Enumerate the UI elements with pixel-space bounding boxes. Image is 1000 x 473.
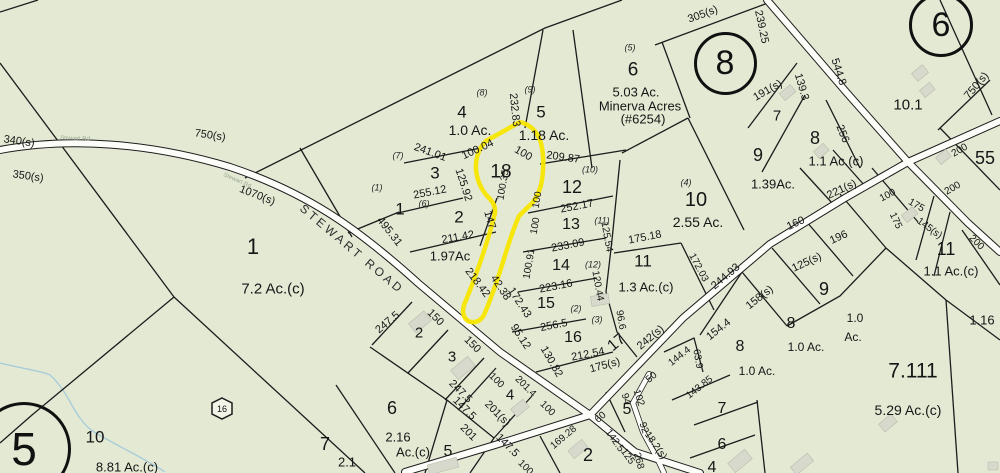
dimension-label: 139.3	[792, 72, 810, 101]
parcel-number[interactable]: 7	[773, 109, 781, 124]
dimension-label: 201	[458, 423, 479, 444]
lot-ref-label: (4)	[681, 179, 692, 188]
parcel-number[interactable]: 17	[605, 331, 629, 355]
lot-ref-label: (5)	[625, 44, 636, 53]
dimension-label: 169.28	[549, 424, 579, 451]
dimension-label: 100	[530, 217, 543, 235]
acreage-label: 8.81 Ac.(c)	[96, 461, 158, 473]
lot-ref-label: (10)	[582, 166, 598, 175]
parcel-number[interactable]: 5	[536, 104, 545, 121]
dimension-label: 125.54	[598, 221, 613, 253]
dimension-label: 145(s)	[915, 217, 944, 242]
dimension-label: 154.4	[705, 317, 733, 343]
dimension-label: 144.4	[667, 345, 693, 368]
acreage-label: 1.3 Ac.(c)	[619, 281, 674, 294]
road-name-label: STEWART ROAD	[298, 202, 407, 296]
parcel-number[interactable]: 3	[430, 165, 439, 182]
parcel-number[interactable]: 11	[937, 240, 956, 258]
parcel-number[interactable]: 12	[562, 178, 582, 196]
parcel-number[interactable]: 6	[628, 61, 639, 80]
dimension-label: 241.01	[412, 142, 447, 164]
parcel-number[interactable]: 6	[387, 399, 397, 417]
parcel-number[interactable]: 10	[685, 190, 707, 210]
dimension-label: 221(s)	[826, 178, 859, 201]
lot-ref-label: (7)	[393, 152, 404, 161]
dimension-label: 143.85	[685, 375, 715, 402]
dimension-label: 175	[906, 197, 925, 214]
dimension-label: 255.12	[412, 184, 447, 201]
dimension-label: 175	[887, 211, 903, 230]
dimension-label: 223.16	[538, 278, 573, 295]
parcel-number[interactable]: 11	[634, 253, 652, 270]
dimension-label: 750(s)	[194, 128, 226, 143]
parcel-number[interactable]: 8	[736, 339, 745, 355]
dimension-label: 102	[631, 389, 646, 408]
acreage-label: Ac.(c)	[396, 446, 430, 459]
parcel-number[interactable]: 9	[753, 146, 763, 164]
parcel-number[interactable]: 10.1	[893, 98, 922, 113]
acreage-label: Ac.	[844, 331, 861, 343]
lot-ref-label: (1)	[372, 184, 383, 193]
acreage-label: 1.1 Ac.(c)	[924, 265, 979, 278]
dimension-label: 150	[462, 335, 483, 356]
acreage-label: 1.0 Ac.	[449, 123, 492, 137]
acreage-label: 1.0 Ac.	[739, 365, 776, 377]
dimension-label: 495.31	[374, 215, 403, 248]
lot-ref-label: (2)	[571, 305, 582, 314]
acreage-label: 1.0 Ac.	[788, 341, 825, 353]
dimension-label: 211.42	[441, 230, 475, 247]
dimension-label: 100.04	[460, 138, 495, 162]
parcel-number[interactable]: 2	[454, 209, 463, 226]
dimension-label: 544.8	[829, 57, 848, 87]
dimension-label: 200	[967, 234, 986, 253]
parcel-number[interactable]: 8	[810, 129, 820, 147]
parcel-number[interactable]: 15	[537, 296, 555, 312]
parcel-number[interactable]: 3	[448, 350, 456, 365]
dimension-label: 150	[425, 308, 446, 329]
dimension-label: 100	[512, 145, 533, 164]
dimension-label: 125(s)	[791, 251, 824, 274]
dimension-label: 147	[481, 210, 497, 231]
lot-ref-label: (3)	[592, 316, 603, 325]
dimension-label: 100	[532, 191, 545, 209]
acreage-label: 2.16	[385, 431, 410, 444]
dimension-label: 233.09	[550, 237, 585, 254]
dimension-label: 160	[785, 215, 806, 233]
parcel-number[interactable]: 7	[718, 401, 727, 417]
dimension-label: 244.93	[710, 262, 743, 292]
parcel-number[interactable]: 14	[552, 258, 570, 274]
parcel-number[interactable]: 7	[320, 435, 330, 453]
dimension-label: 96.6	[613, 310, 626, 331]
dimension-label: 18.2(s)	[642, 430, 668, 461]
parcel-number[interactable]: 4	[457, 104, 466, 121]
parcel-number[interactable]: 6	[718, 437, 727, 453]
dimension-label: 60	[594, 411, 609, 426]
dimension-label: 100	[538, 400, 557, 419]
dimension-label: 175.18	[627, 229, 662, 246]
dimension-label: 191(s)	[752, 78, 785, 103]
dimension-label: 130.82	[538, 345, 564, 380]
acreage-label: 1.1 Ac.(c)	[809, 155, 864, 168]
dimension-label: 100.91	[522, 248, 537, 280]
parcel-number[interactable]: 7.111	[888, 361, 937, 382]
dimension-label: 201.4	[513, 375, 538, 400]
dimension-label: 172.43	[505, 286, 533, 320]
plat-map: 8 6 5 16 STEWART ROADStewart RdStewart R…	[0, 0, 1000, 473]
parcel-number[interactable]: 8	[787, 316, 796, 332]
dimension-label: 63.9	[690, 349, 703, 370]
dimension-label: 100	[878, 188, 897, 205]
acreage-label: 2.1	[338, 456, 356, 469]
dimension-label: 256	[833, 123, 850, 144]
acreage-label: 2.55 Ac.	[673, 215, 724, 229]
dimension-label: 172.03	[686, 252, 709, 284]
dimension-label: 218.42	[462, 266, 491, 299]
acreage-label: 1.0	[847, 312, 864, 324]
acreage-label: 1.39Ac.	[751, 178, 795, 191]
parcel-number[interactable]: 5	[444, 444, 453, 460]
dimension-label: 232.83	[507, 93, 521, 128]
acreage-label: 1.16	[969, 314, 994, 327]
dimension-label: 200	[950, 142, 969, 159]
dimension-label: 750(s)	[963, 71, 991, 102]
road-name-small-label: Stewart Rd	[60, 135, 90, 142]
dimension-label: 1070(s)	[238, 184, 277, 208]
acreage-label: (#6254)	[621, 113, 666, 126]
dimension-label: 196	[828, 229, 849, 247]
dimension-label: 95.12	[508, 322, 532, 351]
dimension-label: 147.5	[450, 395, 477, 422]
dimension-label: 252.17	[559, 198, 594, 215]
dimension-label: 100	[487, 372, 506, 391]
lot-ref-label: (9)	[525, 86, 536, 95]
parcel-number[interactable]: 16	[564, 330, 582, 346]
dimension-label: 305(s)	[686, 4, 719, 25]
lot-ref-label: (6)	[419, 200, 430, 209]
lot-ref-label: (12)	[585, 261, 601, 270]
dimension-label: 209.87	[546, 150, 581, 166]
dimension-label: 50	[645, 371, 660, 386]
lot-ref-label: (8)	[477, 89, 488, 98]
parcel-number[interactable]: 9	[819, 280, 829, 298]
parcel-number[interactable]: 2	[415, 326, 423, 341]
dimension-label: 158(s)	[744, 284, 775, 312]
parcel-number[interactable]: 4	[506, 388, 514, 403]
dimension-label: 100	[516, 459, 535, 473]
parcel-number[interactable]: 4	[708, 460, 717, 473]
dimension-label: 142.5	[603, 428, 626, 454]
map-labels-layer: STEWART ROADStewart RdStewart Rd11234518…	[0, 0, 1000, 473]
dimension-label: 340(s)	[3, 134, 35, 149]
dimension-label: 200	[943, 180, 962, 197]
parcel-number[interactable]: 2	[583, 446, 593, 464]
acreage-label: 1.97Ac	[430, 250, 470, 263]
dimension-label: 239.25	[752, 9, 770, 44]
dimension-label: 242(s)	[636, 324, 667, 352]
parcel-number[interactable]: 55	[975, 149, 995, 167]
parcel-number[interactable]: 13	[562, 217, 580, 233]
acreage-label: 5.29 Ac.(c)	[875, 403, 942, 417]
parcel-number[interactable]: 1	[247, 236, 259, 258]
acreage-label: 7.2 Ac.(c)	[241, 282, 304, 297]
dimension-label: 147.5	[493, 432, 520, 459]
acreage-label: 5.03 Ac.	[613, 86, 660, 99]
parcel-number[interactable]: 1	[395, 201, 404, 218]
dimension-label: 201(s)	[482, 399, 512, 429]
acreage-label: 1.18 Ac.	[519, 128, 570, 142]
dimension-label: 247.5	[374, 310, 402, 336]
dimension-label: 350(s)	[12, 169, 44, 184]
dimension-label: 125.92	[453, 167, 474, 202]
dimension-label: 120.44	[589, 270, 604, 302]
parcel-number[interactable]: 10	[86, 429, 105, 446]
